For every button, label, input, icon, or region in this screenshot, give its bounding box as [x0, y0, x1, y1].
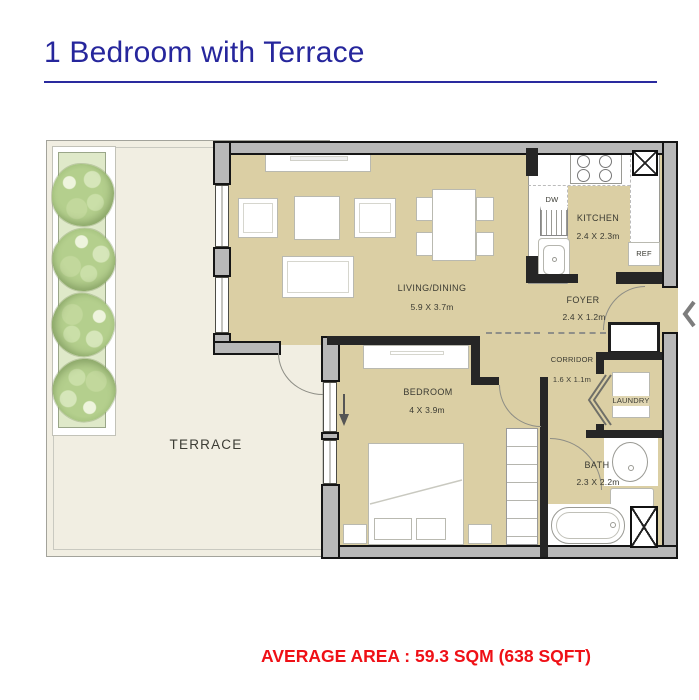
wall-pier: [213, 247, 231, 277]
foyer-dims: 2.4 X 1.2m: [562, 313, 605, 322]
bath-dims: 2.3 X 2.2m: [576, 478, 619, 487]
shaft-x-icon: [632, 150, 658, 176]
page-title: 1 Bedroom with Terrace: [44, 36, 365, 70]
average-area-text: AVERAGE AREA : 59.3 SQM (638 SQFT): [261, 645, 591, 668]
dining-chair: [476, 197, 494, 221]
nightstand: [468, 524, 492, 544]
entry-chevron-icon: [681, 299, 698, 329]
kitchen-dims: 2.4 X 2.3m: [576, 232, 619, 241]
bush-icon: [52, 164, 114, 226]
living-dining-dims: 5.9 X 3.7m: [410, 303, 453, 312]
window: [215, 185, 229, 247]
wall-top: [213, 141, 678, 155]
sofa: [282, 256, 354, 298]
wall-kitchen-L-h: [526, 274, 578, 283]
corridor-dims: 1.6 X 1.1m: [553, 376, 591, 384]
wall-stub: [478, 377, 499, 385]
refrigerator-label: REF: [636, 250, 652, 258]
corridor-label: CORRIDOR: [551, 356, 593, 364]
wall-laundry-top: [596, 352, 662, 360]
foyer-label: FOYER: [566, 296, 599, 305]
wall-foyer-top: [616, 272, 662, 284]
down-arrow-icon: [336, 392, 352, 428]
wall-right-lower: [662, 332, 678, 557]
bedroom-dims: 4 X 3.9m: [409, 406, 445, 415]
wall-living-bottom: [213, 341, 281, 355]
dishwasher-label: DW: [546, 196, 559, 204]
laundry-label: LAUNDRY: [610, 396, 651, 406]
terrace-label: TERRACE: [170, 438, 243, 452]
wall-pier: [321, 484, 340, 559]
bath-label: BATH: [585, 461, 610, 470]
dining-chair: [476, 232, 494, 256]
wall-bath-top: [586, 430, 662, 438]
tub-area: [548, 504, 630, 548]
window: [215, 277, 229, 333]
window: [323, 440, 337, 484]
kitchen-label: KITCHEN: [577, 214, 619, 223]
living-dining-label: LIVING/DINING: [398, 284, 467, 293]
wall-pier: [321, 432, 339, 440]
dashed-boundary: [548, 332, 606, 334]
armchair: [238, 198, 278, 238]
coffee-table: [294, 196, 340, 240]
floor-plan-page: 1 Bedroom with Terrace: [0, 0, 699, 700]
wardrobe: [506, 428, 538, 545]
wall-kitchen-stub: [526, 148, 538, 176]
bath-sink-icon: [612, 442, 648, 482]
shaft-x-icon: [630, 506, 658, 548]
washer-icon: [612, 372, 650, 418]
nightstand: [343, 524, 367, 544]
armchair: [354, 198, 396, 238]
dishwasher-icon: [540, 206, 568, 236]
window: [323, 382, 337, 432]
wall-right-upper: [662, 141, 678, 288]
bed-fold-line: [368, 468, 464, 512]
wall-pier: [213, 141, 231, 185]
pillow: [374, 518, 412, 540]
title-underline: [44, 81, 657, 83]
pillow: [416, 518, 446, 540]
wall-bottom: [323, 545, 678, 559]
dining-table: [432, 189, 476, 261]
wall-bedroom-top: [327, 336, 478, 345]
bedroom-label: BEDROOM: [403, 388, 452, 397]
stove-icon: [570, 150, 622, 184]
dashed-boundary: [486, 332, 540, 334]
wall-corridor-left: [540, 377, 548, 557]
area-summary: AVERAGE AREA : 59.3 SQM (638 SQFT) TERRA…: [261, 599, 591, 700]
dresser: [363, 345, 469, 369]
